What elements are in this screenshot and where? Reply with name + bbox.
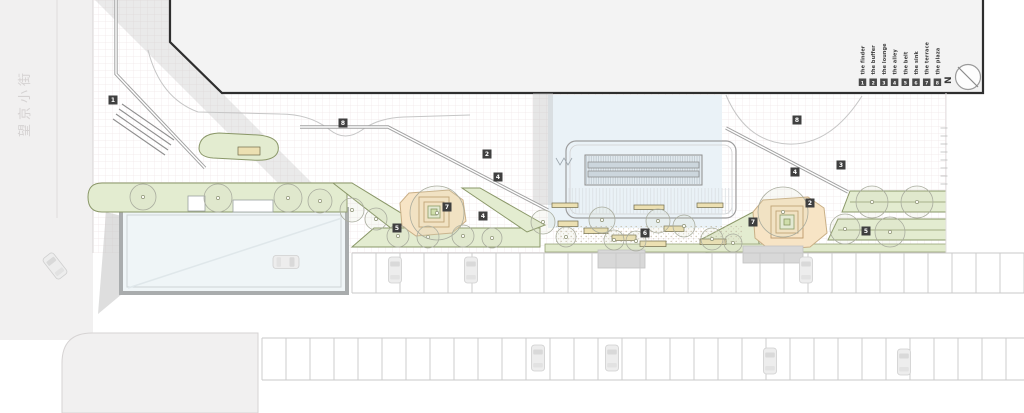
escalator-band-1: [588, 162, 699, 168]
glass-roof-frame: [121, 209, 347, 293]
tree: [724, 234, 742, 252]
car-icon: [389, 257, 402, 283]
keymap-marker: 6: [641, 229, 650, 238]
legend-item: 1the finder: [859, 45, 867, 86]
street-pavement: [0, 0, 93, 340]
keymap-marker: 7: [443, 203, 452, 212]
svg-text:5: 5: [864, 228, 868, 235]
svg-text:4: 4: [496, 174, 500, 181]
svg-text:8: 8: [795, 117, 799, 124]
car-icon: [898, 349, 911, 375]
svg-text:the belt: the belt: [903, 51, 909, 74]
svg-text:5: 5: [395, 225, 399, 232]
keymap-marker: 1: [109, 96, 118, 105]
car-icon: [532, 345, 545, 371]
legend-item: 7the terrace: [923, 41, 931, 86]
svg-text:7: 7: [445, 204, 449, 211]
tree: [410, 186, 464, 240]
kiosk-2: [233, 200, 273, 212]
svg-text:4: 4: [793, 169, 797, 176]
street-name-label: 望京小街: [17, 69, 33, 137]
tree: [830, 214, 860, 244]
svg-text:the terrace: the terrace: [925, 41, 931, 74]
svg-text:7: 7: [751, 219, 755, 226]
svg-text:5: 5: [904, 80, 907, 86]
svg-text:8: 8: [341, 120, 345, 127]
keymap-marker: 4: [479, 212, 488, 221]
car-icon: [800, 257, 813, 283]
site-plan-canvas: 18247456843275 1the finder2the buffer3th…: [0, 0, 1024, 413]
car-icon: [273, 256, 299, 269]
tree: [701, 228, 723, 250]
svg-text:the lounge: the lounge: [882, 43, 888, 75]
svg-text:the finder: the finder: [861, 45, 867, 74]
car-icon: [764, 348, 777, 374]
tree: [856, 186, 888, 218]
sunken-stairs: [567, 188, 733, 214]
tree: [646, 209, 670, 233]
legend-item: 4the alley: [891, 48, 899, 86]
keymap-marker: 4: [494, 173, 503, 182]
svg-text:2: 2: [485, 151, 489, 158]
tree: [875, 217, 905, 247]
keymap-marker: 5: [393, 224, 402, 233]
svg-text:6: 6: [914, 80, 917, 86]
keymap-marker: 8: [339, 119, 348, 128]
tree: [589, 207, 615, 233]
svg-text:1: 1: [111, 97, 115, 104]
tree: [274, 184, 302, 212]
legend-item: 6the sink: [912, 51, 920, 87]
svg-text:2: 2: [872, 80, 875, 86]
escalator-hatch: [586, 156, 701, 184]
svg-text:3: 3: [882, 80, 885, 86]
tree: [204, 184, 232, 212]
tree: [673, 215, 695, 237]
site-plan-drawing: 18247456843275 1the finder2the buffer3th…: [0, 0, 1024, 413]
tree: [130, 184, 156, 210]
north-label: N: [944, 76, 954, 84]
car-icon: [606, 345, 619, 371]
svg-text:2: 2: [808, 200, 812, 207]
svg-text:the alley: the alley: [893, 48, 899, 74]
svg-text:1: 1: [861, 80, 864, 86]
svg-text:the buffer: the buffer: [871, 45, 877, 75]
tree: [308, 189, 332, 213]
svg-text:4: 4: [481, 213, 485, 220]
keymap-marker: 3: [837, 161, 846, 170]
svg-text:4: 4: [893, 80, 896, 86]
legend-item: 3the lounge: [880, 43, 888, 86]
svg-text:3: 3: [839, 162, 843, 169]
south-parcel: [62, 333, 258, 413]
sunken-shadow: [533, 93, 553, 205]
keymap-marker: 2: [806, 199, 815, 208]
tree: [365, 208, 387, 230]
tree: [531, 210, 555, 234]
svg-text:the plaza: the plaza: [935, 48, 941, 75]
svg-text:7: 7: [925, 80, 928, 86]
left-street: [0, 0, 93, 340]
svg-text:6: 6: [643, 230, 647, 237]
keymap-marker: 7: [749, 218, 758, 227]
service-block-2: [743, 246, 803, 263]
tree: [604, 230, 624, 250]
tree: [758, 187, 808, 237]
tree: [482, 228, 502, 248]
legend-item: 5the belt: [902, 51, 910, 86]
svg-text:the sink: the sink: [914, 51, 920, 75]
svg-text:8: 8: [936, 80, 939, 86]
kiosk-1: [188, 196, 205, 211]
keymap-marker: 2: [483, 150, 492, 159]
keymap-marker: 8: [793, 116, 802, 125]
tree: [901, 186, 933, 218]
legend-item: 2the buffer: [869, 45, 877, 87]
tree: [556, 227, 576, 247]
car-icon: [465, 257, 478, 283]
legend-item: 8the plaza: [934, 48, 942, 87]
keymap-marker: 4: [791, 168, 800, 177]
tree: [340, 198, 364, 222]
keymap-marker: 5: [862, 227, 871, 236]
escalator-band-2: [588, 171, 699, 177]
